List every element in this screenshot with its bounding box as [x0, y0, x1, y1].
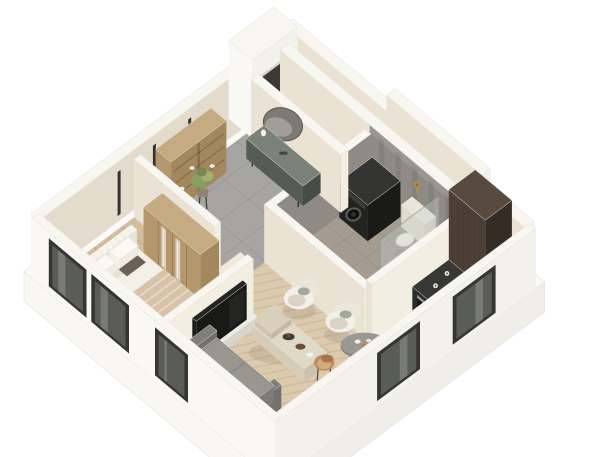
floorplan-stage [0, 0, 600, 457]
apartment-isometric-render [0, 0, 600, 457]
